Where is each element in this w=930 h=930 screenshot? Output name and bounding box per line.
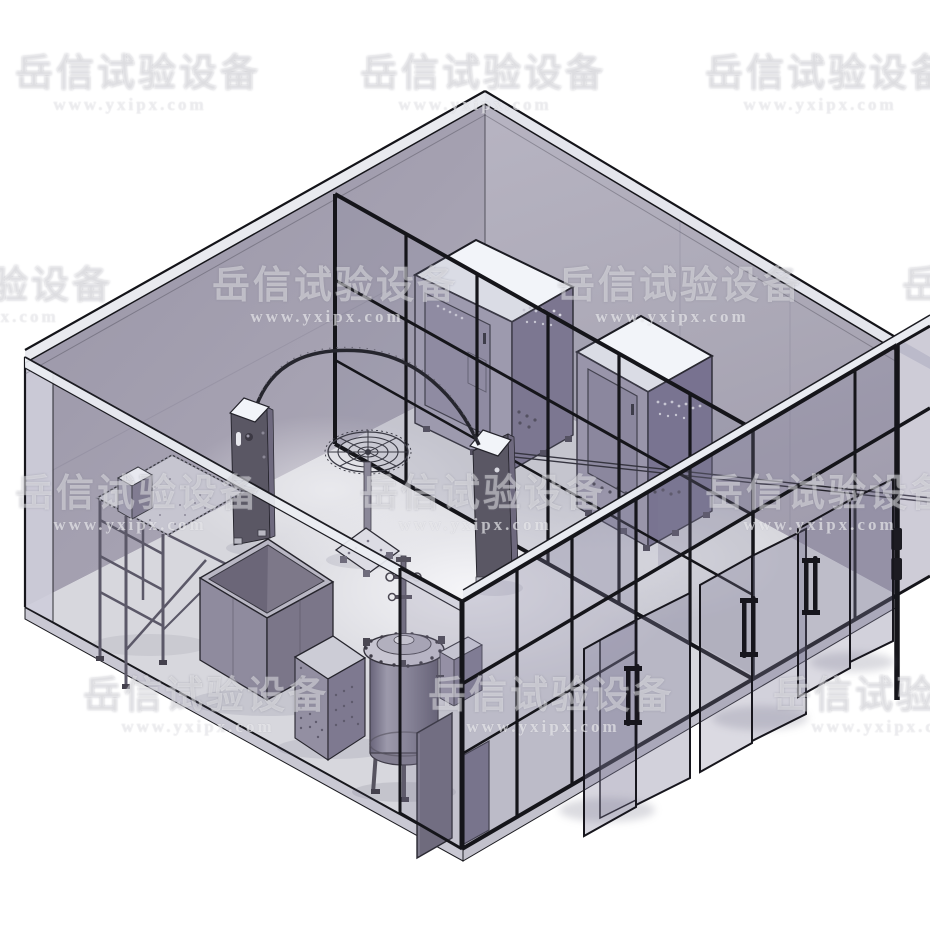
cad-render-stage: 岳信试验设备www.yxipx.com岳信试验设备www.yxipx.com岳信… bbox=[0, 0, 930, 930]
sample-box bbox=[118, 467, 152, 519]
scene-svg bbox=[0, 0, 930, 930]
